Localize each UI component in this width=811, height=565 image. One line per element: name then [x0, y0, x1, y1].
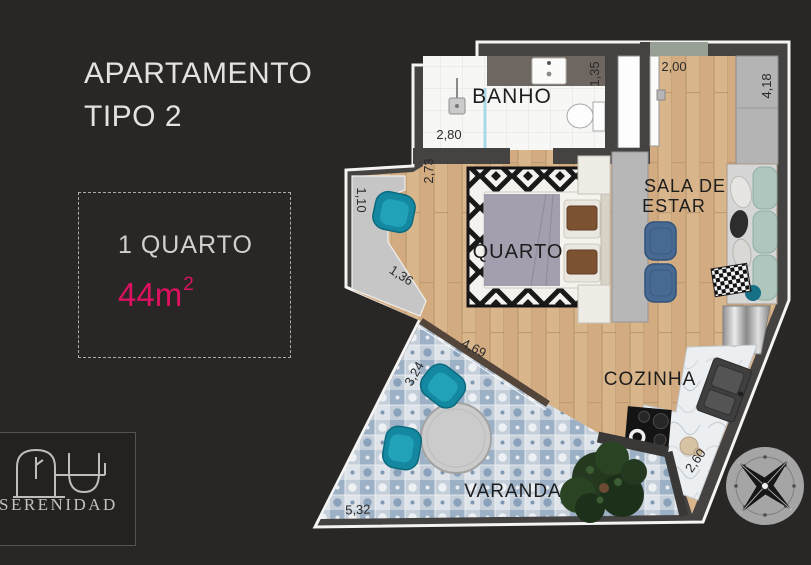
room-label-banho: BANHO: [472, 85, 552, 108]
dim-banho-width: 2,80: [436, 127, 461, 142]
nightstand-top: [578, 156, 610, 194]
wall-shaft-hall: [640, 42, 650, 162]
page-background: APARTAMENTO TIPO 2 1 QUARTO 44m2 SERENID…: [0, 0, 811, 565]
entry-wardrobe: [736, 56, 778, 164]
dim-sala-depth: 4,18: [759, 73, 774, 98]
room-label-varanda: VARANDA: [464, 481, 561, 502]
bathroom-sink: [532, 58, 566, 84]
room-label-cozinha: COZINHA: [604, 369, 697, 390]
balcony-table: [421, 403, 491, 473]
nightstand-bottom: [578, 285, 610, 323]
room-label-sala-1: SALA DE: [644, 176, 726, 196]
floor-plan: BANHO QUARTO SALA DE ESTAR COZINHA VARAN…: [0, 0, 811, 565]
dim-nook-depth: 1,10: [354, 187, 369, 212]
entry-opening: [650, 42, 708, 56]
room-label-sala-2: ESTAR: [642, 196, 706, 216]
dim-banho-depth: 1,35: [587, 61, 602, 86]
room-label-quarto: QUARTO: [473, 241, 564, 263]
bath-door-opening: [510, 148, 553, 164]
dim-varanda-bottom: 5,32: [345, 502, 371, 518]
dim-entry-width: 2,00: [661, 59, 686, 74]
partition-cabinet: [612, 152, 648, 322]
wall-bath-shaft: [605, 56, 618, 150]
service-shaft: [618, 56, 640, 148]
dim-quarto-depth: 2,73: [421, 158, 436, 183]
checkered-pouf: [711, 263, 751, 296]
